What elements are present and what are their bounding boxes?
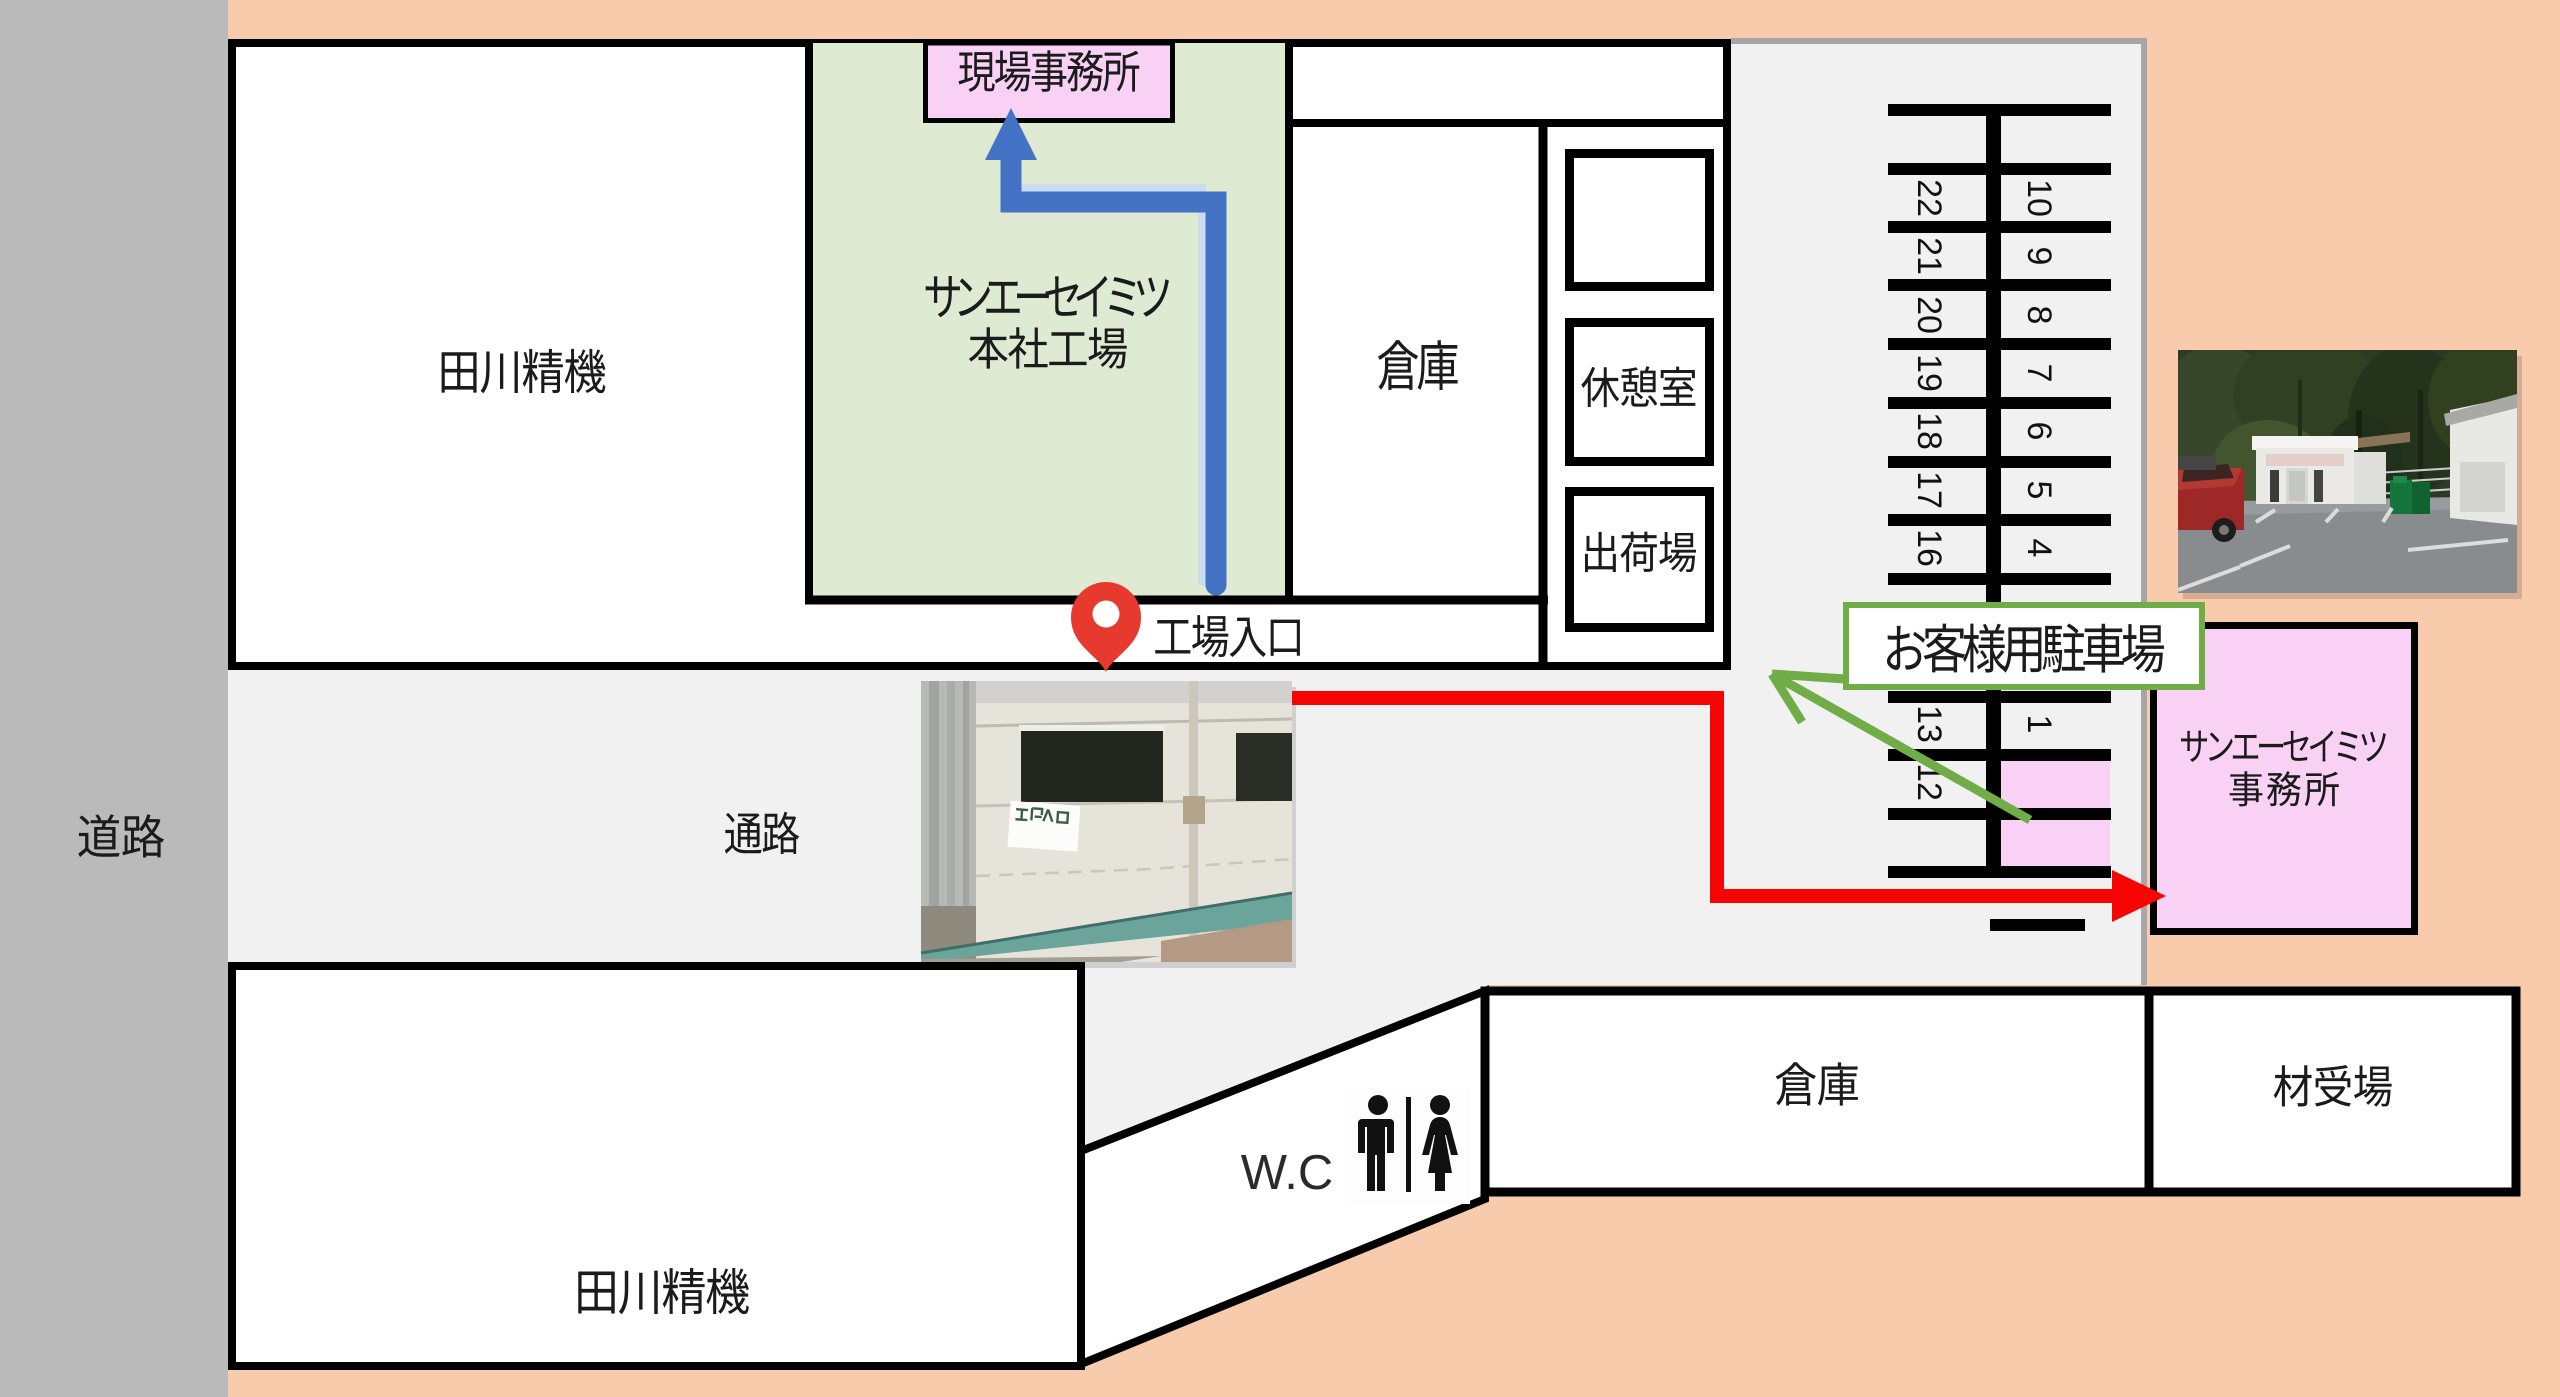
svg-text:9: 9: [2020, 247, 2058, 266]
svg-text:17: 17: [1910, 471, 1948, 509]
svg-text:13: 13: [1910, 705, 1948, 743]
svg-text:20: 20: [1910, 296, 1948, 334]
svg-text:W.C: W.C: [1241, 1146, 1334, 1200]
svg-text:21: 21: [1910, 237, 1948, 275]
svg-text:19: 19: [1910, 354, 1948, 392]
svg-text:6: 6: [2020, 422, 2058, 441]
svg-text:22: 22: [1910, 179, 1948, 217]
svg-text:16: 16: [1910, 529, 1948, 567]
svg-text:10: 10: [2020, 179, 2058, 217]
svg-text:18: 18: [1910, 412, 1948, 450]
svg-text:1: 1: [2020, 715, 2058, 734]
svg-text:7: 7: [2020, 364, 2058, 383]
svg-text:5: 5: [2020, 481, 2058, 500]
svg-text:4: 4: [2020, 539, 2058, 558]
svg-text:8: 8: [2020, 306, 2058, 325]
